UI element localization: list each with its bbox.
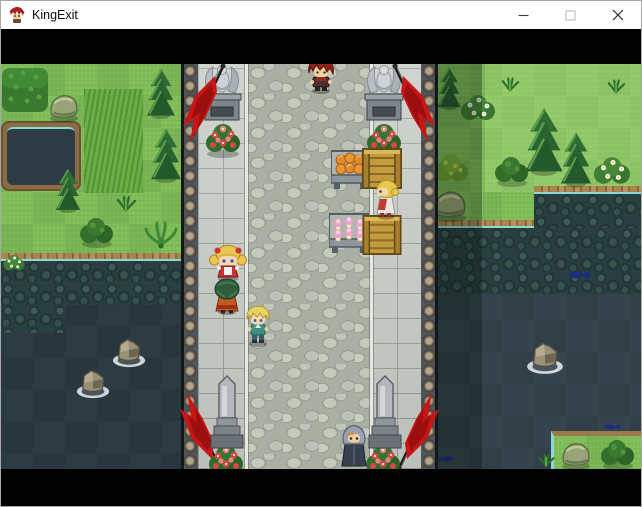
flower-bush [203, 121, 243, 159]
white-flower-bush [589, 154, 635, 188]
conifer-tree [559, 127, 593, 191]
tall-grass-patch [84, 89, 143, 193]
grass-tuft [603, 76, 629, 94]
app-icon[interactable] [8, 6, 26, 24]
wooden-crate [362, 215, 402, 255]
cobblestone-road [247, 64, 372, 469]
dark-bush [593, 438, 641, 469]
bridge-shadow [438, 64, 482, 469]
dark-bush [493, 152, 531, 190]
dark-bush [78, 216, 116, 248]
game-viewport[interactable] [1, 29, 641, 507]
app-window: KingExit [0, 0, 642, 507]
moss-rock [557, 440, 595, 469]
conifer-tree [149, 127, 183, 183]
river-shallows-right2 [534, 194, 641, 228]
title-bar[interactable]: KingExit [1, 1, 641, 29]
close-button[interactable] [594, 1, 641, 29]
river-boulder [525, 336, 565, 376]
fish [567, 269, 591, 281]
window-title: KingExit [32, 1, 78, 29]
npc-market-vendor [372, 180, 400, 220]
maximize-button[interactable] [547, 1, 594, 29]
grass-tuft [497, 74, 523, 92]
hedge-bush [1, 67, 49, 113]
moss-rock [47, 91, 81, 123]
river-boulder [74, 364, 112, 400]
game-map [1, 64, 641, 469]
npc-green-haired-villager [209, 277, 245, 315]
npc-hooded-figure [339, 424, 369, 469]
grass-tuft [113, 192, 139, 212]
fern-plant [144, 219, 178, 251]
fish [603, 422, 621, 432]
memorial-obelisk-right [368, 374, 402, 450]
letterbox-bottom [1, 469, 641, 507]
minimize-button[interactable] [500, 1, 547, 29]
grass-tuft [535, 450, 557, 468]
npc-hero [243, 305, 273, 347]
letterbox-top [1, 29, 641, 64]
conifer-tree [144, 67, 178, 119]
close-icon [612, 9, 624, 21]
maximize-icon [565, 10, 576, 21]
conifer-tree [53, 167, 83, 213]
white-flower-bush [1, 252, 27, 274]
shore-left [1, 253, 181, 261]
npc-red-haired-villager [303, 64, 339, 94]
minimize-icon [518, 10, 529, 21]
memorial-obelisk-left [210, 374, 244, 450]
river-boulder [111, 332, 147, 370]
